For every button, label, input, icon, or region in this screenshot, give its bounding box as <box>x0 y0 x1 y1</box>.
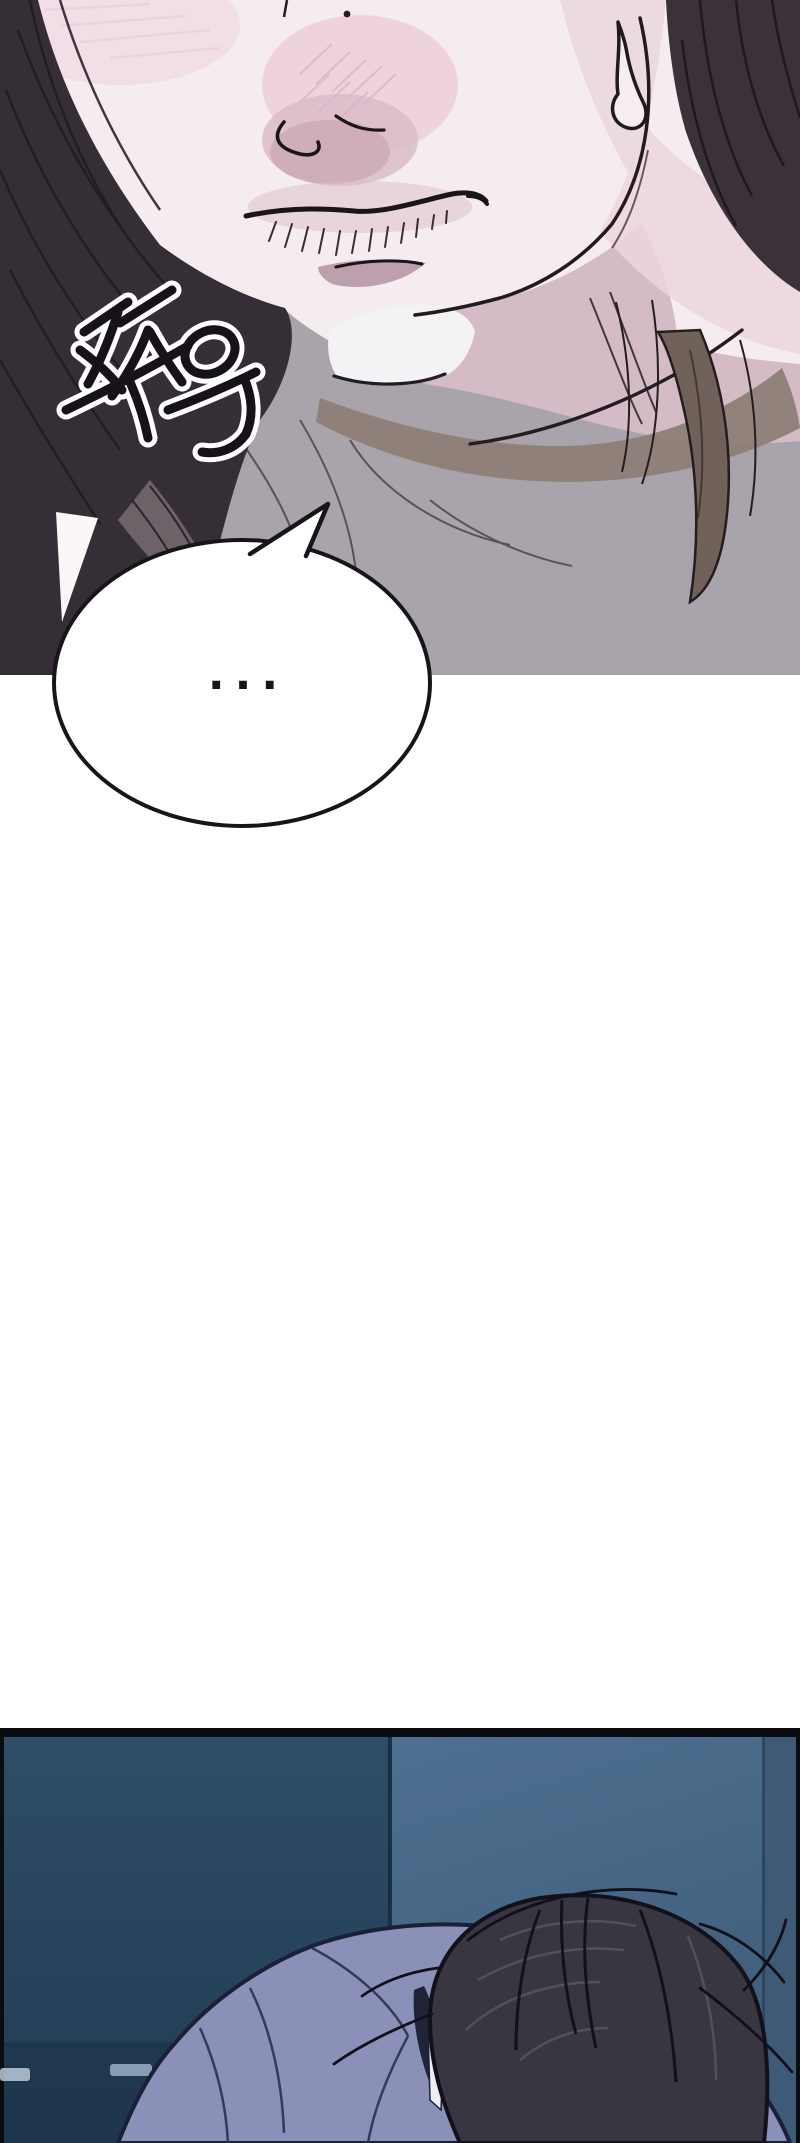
speech-bubble: ... <box>52 538 432 828</box>
light-dash <box>0 2068 30 2081</box>
webtoon-page: 쭈욱 ... <box>0 0 800 2143</box>
light-dash <box>110 2064 152 2076</box>
speech-bubble-tail <box>238 496 348 562</box>
page-gutter <box>0 675 800 1728</box>
panel-2-dark-room <box>0 1728 800 2143</box>
beauty-mark <box>344 11 351 18</box>
panel-2-artwork <box>0 1728 800 2143</box>
